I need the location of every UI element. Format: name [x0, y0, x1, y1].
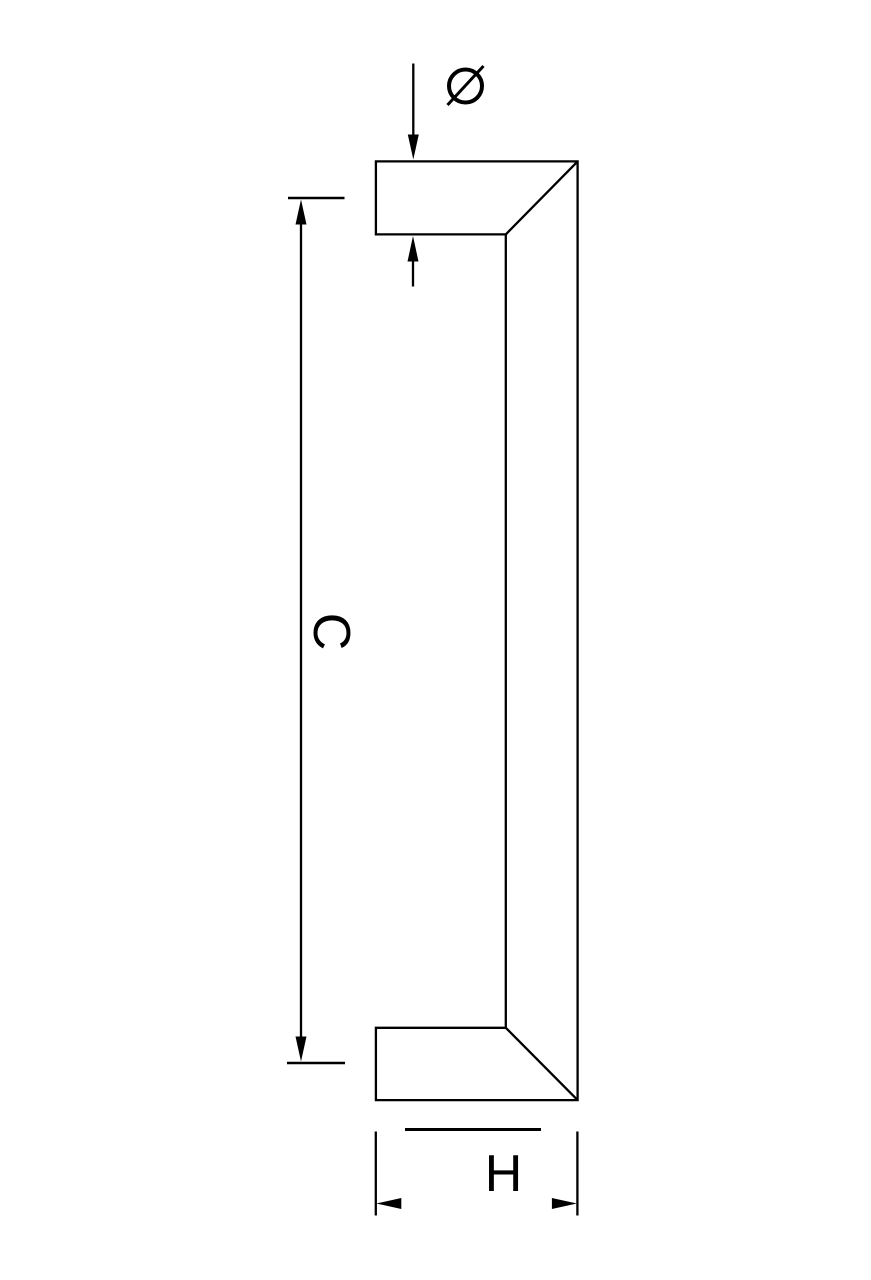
svg-text:C: C [302, 613, 360, 651]
svg-text:H: H [485, 1145, 523, 1203]
